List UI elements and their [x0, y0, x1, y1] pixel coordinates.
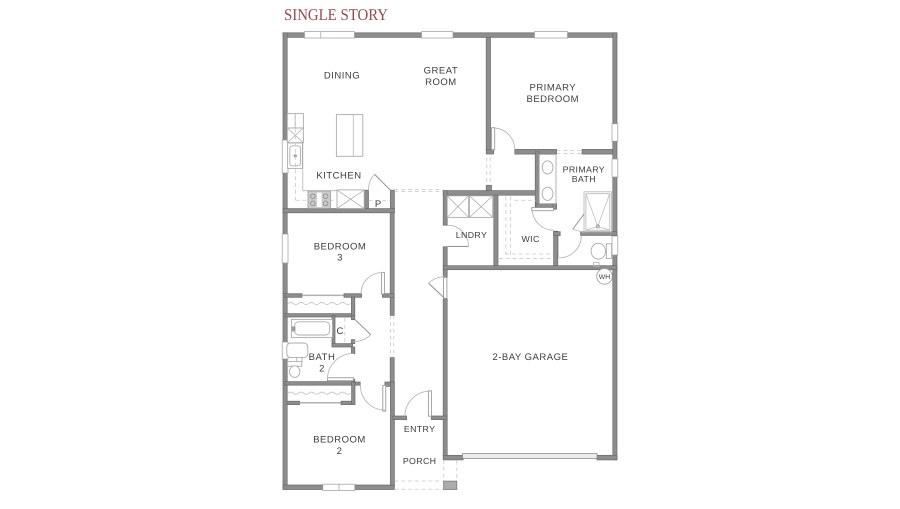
- svg-text:3: 3: [337, 253, 343, 264]
- svg-text:WIC: WIC: [522, 234, 540, 244]
- svg-text:C: C: [337, 326, 344, 337]
- svg-text:BATH: BATH: [309, 352, 336, 363]
- svg-text:PRIMARY: PRIMARY: [529, 83, 576, 94]
- svg-text:KITCHEN: KITCHEN: [316, 170, 361, 181]
- svg-text:WH: WH: [599, 274, 611, 281]
- svg-text:PORCH: PORCH: [403, 456, 437, 466]
- svg-text:DINING: DINING: [324, 71, 360, 82]
- svg-text:2: 2: [319, 363, 325, 374]
- svg-text:2: 2: [337, 446, 343, 457]
- svg-text:BEDROOM: BEDROOM: [313, 435, 366, 446]
- svg-text:LNDRY: LNDRY: [456, 230, 487, 240]
- svg-text:BATH: BATH: [572, 174, 596, 184]
- svg-text:BEDROOM: BEDROOM: [314, 241, 367, 252]
- svg-text:ENTRY: ENTRY: [404, 424, 435, 434]
- svg-text:P: P: [375, 199, 382, 210]
- svg-text:GREAT: GREAT: [424, 65, 459, 76]
- svg-text:ROOM: ROOM: [425, 77, 457, 88]
- svg-text:SINGLE STORY: SINGLE STORY: [284, 5, 388, 24]
- svg-text:2-BAY GARAGE: 2-BAY GARAGE: [492, 352, 568, 363]
- svg-text:BEDROOM: BEDROOM: [527, 94, 580, 105]
